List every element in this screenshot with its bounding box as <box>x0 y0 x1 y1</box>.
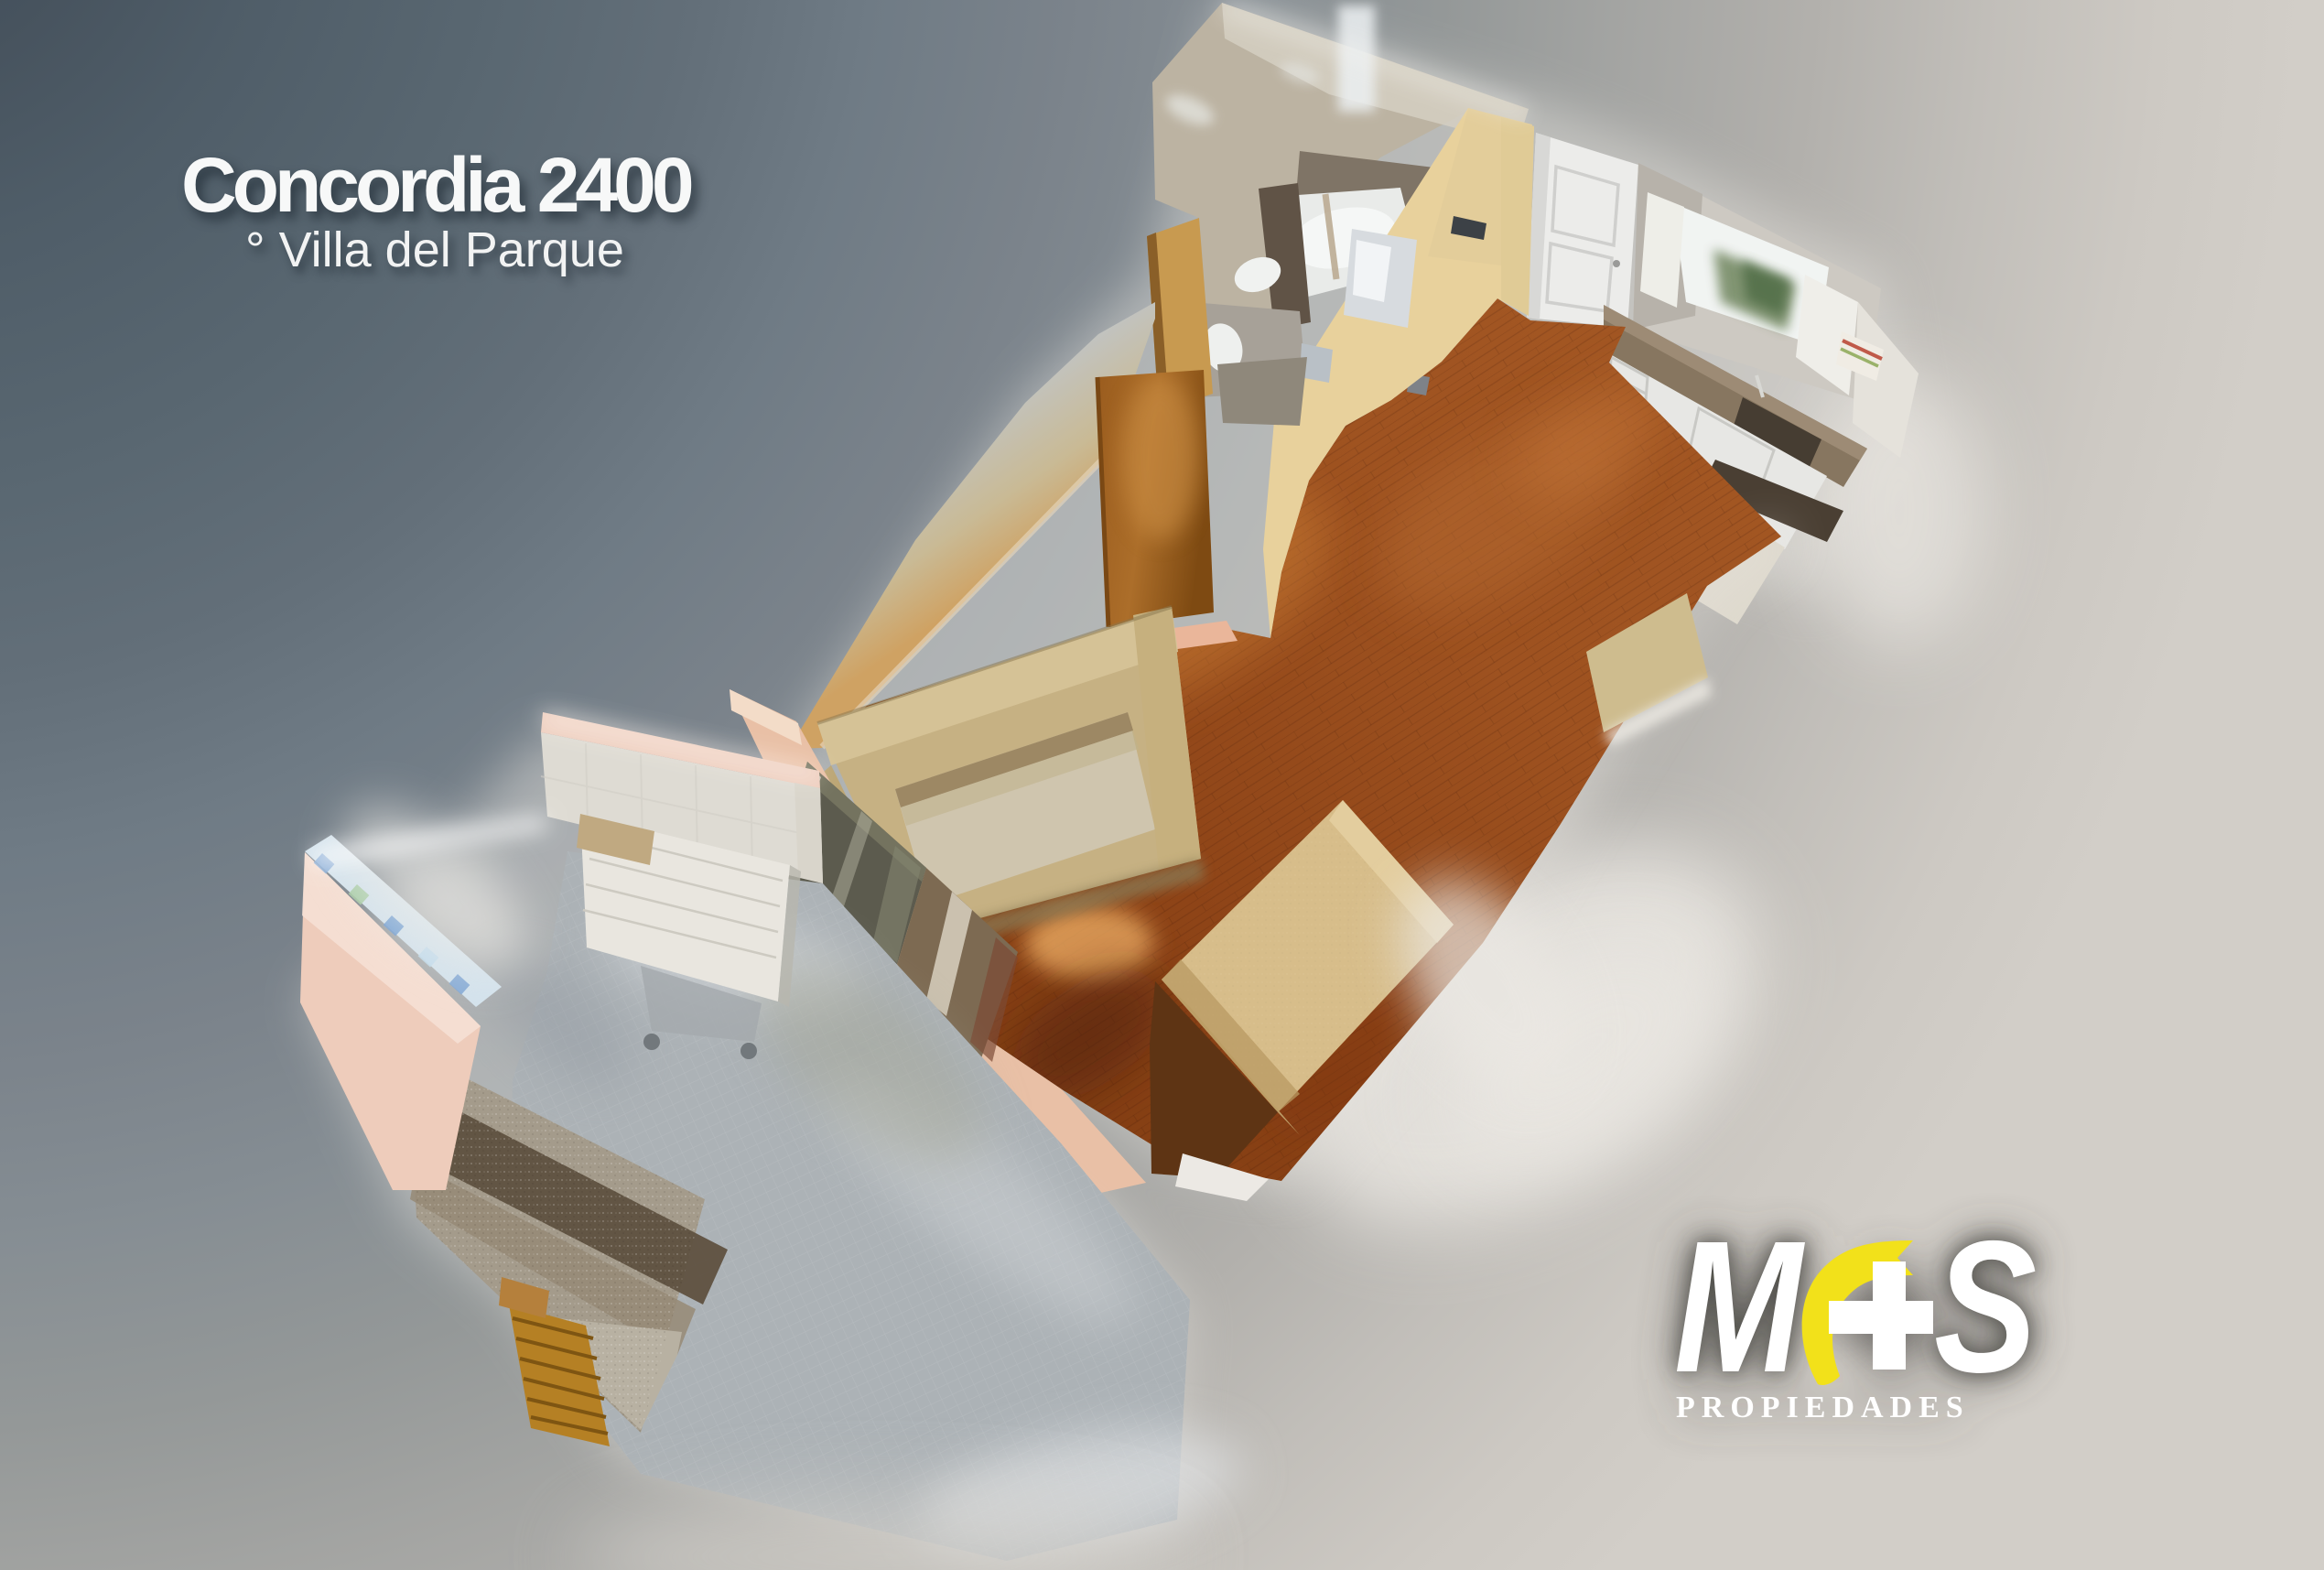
svg-text:S: S <box>1934 1201 2037 1412</box>
svg-text:PROPIEDADES: PROPIEDADES <box>1676 1391 1970 1424</box>
svg-text:M: M <box>1674 1201 1805 1412</box>
